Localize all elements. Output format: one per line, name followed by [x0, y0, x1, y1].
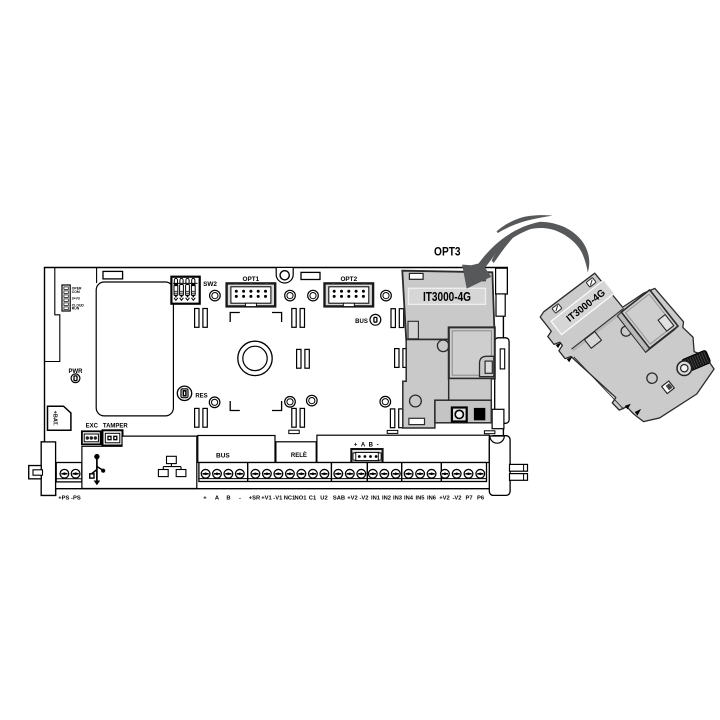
svg-text:COM: COM [72, 290, 80, 294]
svg-text:IN2: IN2 [382, 496, 391, 502]
svg-text:NO1: NO1 [295, 496, 308, 502]
svg-text:B: B [226, 496, 230, 502]
svg-text:RES: RES [195, 394, 207, 400]
svg-text:C1: C1 [309, 496, 317, 502]
svg-text:+BAT.: +BAT. [52, 411, 58, 426]
svg-text:RELÈ: RELÈ [291, 451, 307, 459]
svg-text:IN6: IN6 [427, 496, 437, 502]
svg-text:OPT3: OPT3 [434, 245, 461, 259]
svg-text:3+V3: 3+V3 [72, 297, 80, 301]
svg-text:U2: U2 [320, 496, 327, 502]
svg-text:+PS -PS: +PS -PS [58, 496, 81, 502]
svg-text:-: - [239, 496, 241, 502]
svg-text:OPT1: OPT1 [243, 276, 260, 283]
svg-text:SW2: SW2 [203, 281, 217, 288]
svg-text:EXC: EXC [86, 423, 99, 429]
svg-text:+V1: +V1 [261, 496, 272, 502]
svg-text:P6: P6 [477, 496, 485, 502]
svg-text:-V2: -V2 [452, 496, 461, 502]
svg-text:IN4: IN4 [404, 496, 414, 502]
svg-text:P7: P7 [465, 496, 472, 502]
svg-text:-V2: -V2 [359, 496, 368, 502]
svg-text:BUS: BUS [355, 319, 368, 325]
svg-text:IN1: IN1 [371, 496, 381, 502]
svg-text:BUS: BUS [216, 453, 230, 460]
svg-text:TAMPER: TAMPER [103, 423, 129, 429]
svg-text:SAB: SAB [333, 496, 345, 502]
svg-text:+ A B -: + A B - [354, 443, 380, 449]
svg-text:RUN: RUN [72, 307, 80, 311]
svg-text:+SR: +SR [249, 496, 261, 502]
svg-text:OPT2: OPT2 [340, 276, 357, 283]
svg-text:IT3000-4G: IT3000-4G [423, 289, 471, 304]
svg-text:-V1: -V1 [273, 496, 283, 502]
svg-text:IN3: IN3 [393, 496, 403, 502]
svg-text:+V2: +V2 [347, 496, 357, 502]
svg-text:IN5: IN5 [415, 496, 425, 502]
svg-text:+V2: +V2 [439, 496, 449, 502]
